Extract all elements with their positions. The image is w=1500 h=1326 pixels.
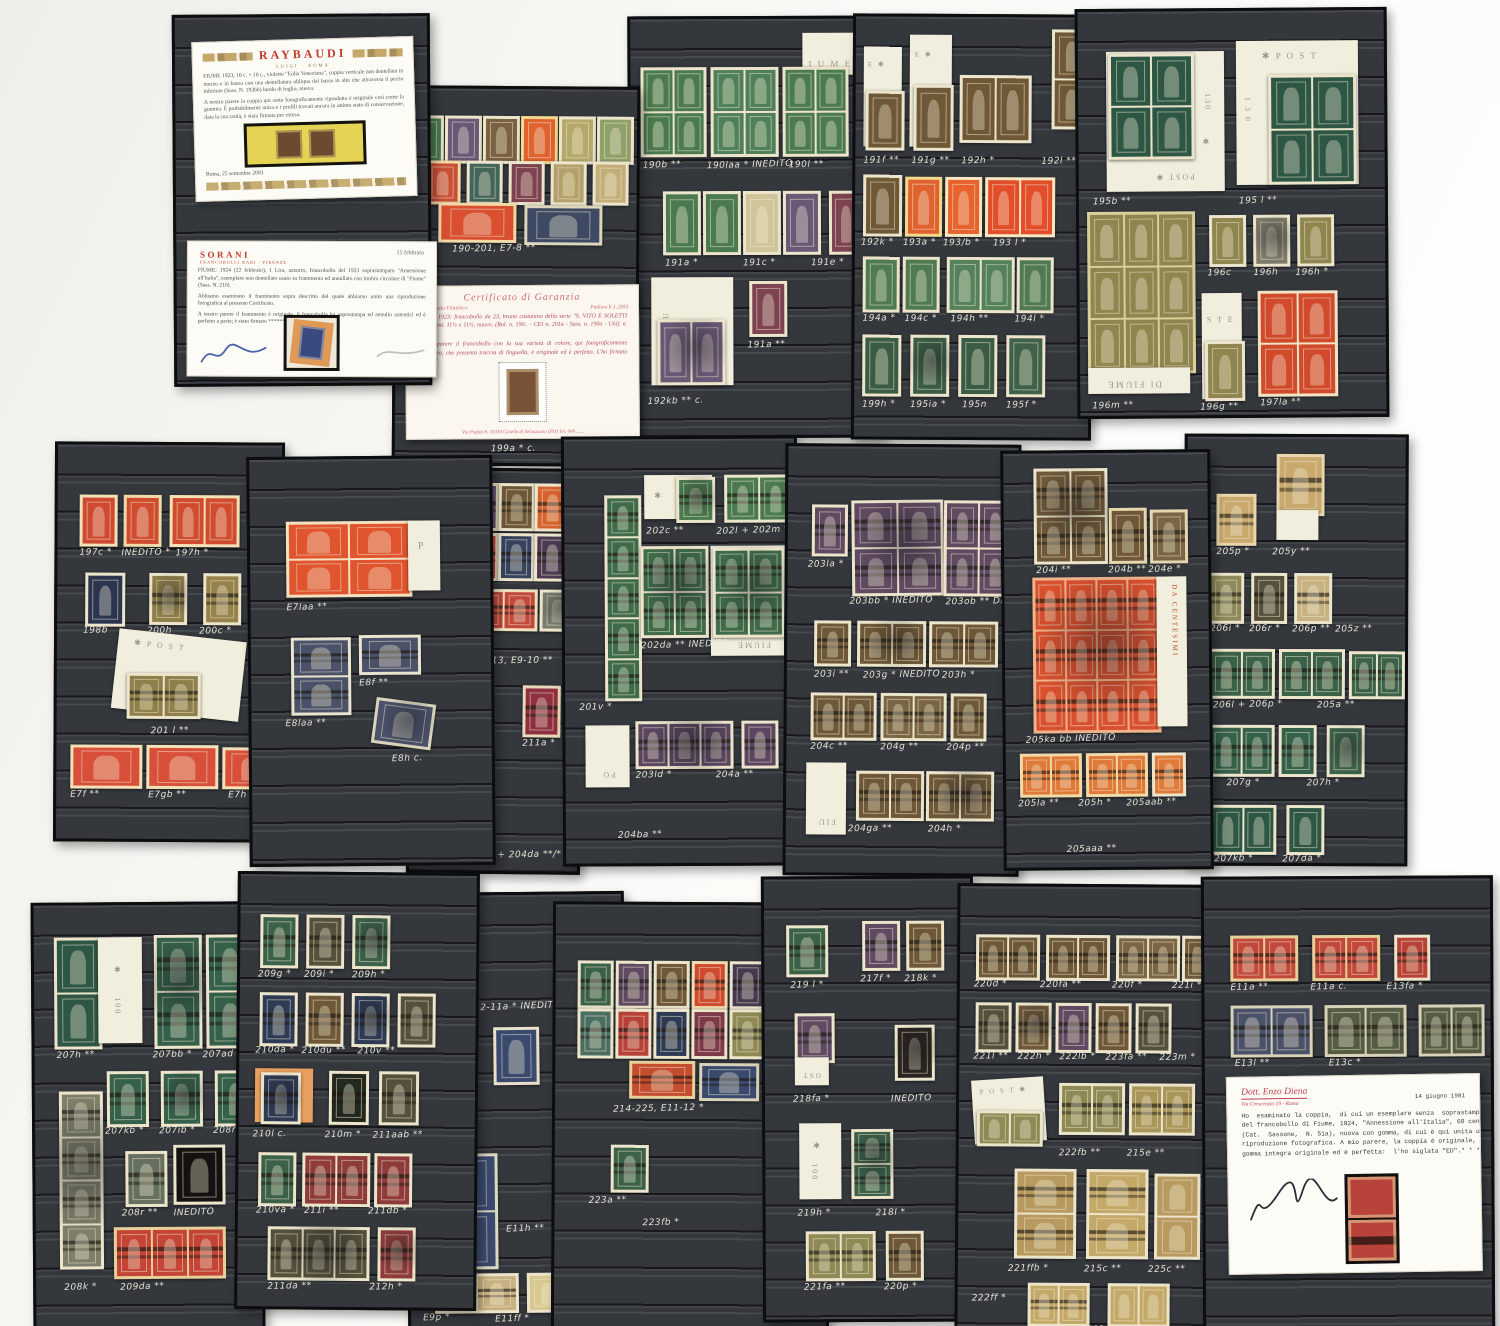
stamp-design [270,1229,301,1277]
stamp [493,1027,540,1085]
stamp-design [866,259,897,309]
stamp-design [929,774,959,818]
stamp-design [1020,260,1051,310]
stamp-design [1219,497,1253,543]
stamp-photo [1344,1173,1399,1264]
stamp-design [607,498,638,537]
stamp-design [1089,1172,1145,1213]
stamp-photo [498,362,546,422]
photographed-stamp [1347,1176,1396,1218]
stamp [149,573,187,625]
stamp-design [164,1074,200,1124]
stamp-design [679,480,712,520]
stamp [1086,1169,1149,1259]
stamp-design [1067,681,1096,730]
stamp-design [1157,1177,1197,1216]
catalog-annotation: 193a * [903,238,936,248]
so-sub: FRANCOBOLLI RARI - FIRENZE [200,260,287,265]
stamp-design [979,937,1007,977]
stamp-design [1271,130,1311,181]
stamp [1312,935,1380,981]
stamp [203,573,241,625]
stamp [1327,725,1365,777]
catalog-annotation: 203g * INEDITO [863,670,941,680]
stamp-design [789,928,825,974]
stamp [640,67,706,157]
stamp [1209,725,1275,777]
stamp [258,1152,296,1206]
stamp [958,335,997,397]
stamp-design [1366,1008,1403,1054]
stamp-design [1313,652,1342,696]
stamp [54,937,103,1049]
catalog-annotation: 221l ** [973,1052,1008,1062]
stamp-design [1112,511,1144,561]
stamp-design [350,524,409,559]
catalog-annotation: 212h * [369,1283,402,1293]
stamp-design [1098,630,1127,679]
stamp [1015,1003,1051,1053]
stamp-design [909,924,941,968]
catalog-annotation: E9p * [423,1313,450,1323]
stamp [438,202,516,243]
catalog-annotation: 191a ** [747,340,785,350]
stamp-design [964,624,995,664]
stamp-design [448,119,479,161]
stamp-design [157,993,199,1046]
stamp-design [657,964,687,1006]
catalog-annotation: 190b ** [643,161,682,171]
stamp [483,116,520,164]
catalog-annotation: 209da ** [120,1282,165,1292]
stamp-design [1159,214,1192,265]
stamp-design [692,322,722,382]
catalog-annotation: 211db * [368,1207,408,1217]
cp: FIUME 1923, 10 c. + 10 c., violetto "Eol… [203,68,404,96]
stamp-design [289,524,348,559]
stamp [862,921,900,971]
stamp-design [913,338,946,394]
stamp [445,116,482,164]
stamp-design [1330,728,1362,774]
margin-inscription: FIU [817,817,836,826]
stamp-design [842,1234,873,1278]
margin-paper: OST [795,1057,829,1085]
catalog-annotation: 223a ** [588,1196,626,1206]
stamp [379,1071,419,1125]
stamp-design [157,938,199,991]
stamp-design [1037,517,1070,561]
stockbook-card: 203la *203bb * INEDITO203ob ** DECAL.203… [782,443,1021,877]
stamp [945,177,982,237]
stamp-design [1149,938,1177,978]
stamp-design [1352,654,1376,696]
catalog-annotation: 194a * [862,314,895,324]
stamp-design [854,1132,890,1163]
stockbook-card: ✱100207h **207bb *207ad **207kb *207ib *… [31,901,266,1326]
catalog-annotation: 196h * [1295,268,1329,278]
catalog-annotation: 211da ** [267,1282,311,1292]
stamp-design [1090,215,1123,266]
stamp-design [786,194,818,252]
stamp [913,85,953,151]
gold-ornament [206,177,406,191]
catalog-annotation: 204c ** [810,742,848,752]
stamp [1027,1283,1089,1326]
stamp-design [1208,344,1242,398]
margin-paper: PO [585,725,629,787]
stamp-design [809,1234,840,1278]
stamp-design [1071,471,1104,515]
stamp [1033,468,1108,565]
stamp-design [206,576,238,622]
stamp [1209,215,1246,267]
stamp-design [785,70,814,111]
stamp-design [596,165,626,203]
stamp-design [854,503,896,547]
photographed-stamp [308,129,335,158]
stamp-design [914,696,943,738]
stamp-design [1129,630,1158,679]
margin-paper: ✱100 [799,1123,841,1199]
stamp [975,1002,1011,1052]
stamp [976,934,1040,980]
stamp [1324,1005,1406,1057]
catalog-annotation: 205z ** [1335,625,1372,635]
stamp-design [892,624,923,664]
stamp-design [1125,267,1158,318]
stamp [1208,573,1244,624]
catalog-annotation: 195f * [1006,401,1037,411]
stamp-design [1098,1006,1128,1050]
margin-inscription: 100 [810,1163,819,1181]
catalog-annotation: 204e * [1148,565,1181,575]
stamp-design [1289,808,1321,852]
photographed-stamp [298,326,325,360]
stamp-design [1313,130,1353,181]
stamp-design [1327,1008,1364,1054]
stamp-design [962,78,994,140]
stamp-design [337,1156,367,1204]
stamp-design [117,1230,151,1276]
catalog-annotation: E13l ** [1235,1059,1270,1069]
stamp [597,117,634,165]
stamp [895,1025,935,1081]
stamp [699,1063,759,1101]
catalog-annotation: INEDITO * [121,548,170,558]
margin-paper: DA CENTESIMI [1156,576,1187,726]
stamp-design [714,113,744,154]
stamp-design [1129,681,1158,730]
stamp-design [1021,180,1052,234]
stamp-design [1018,1006,1048,1050]
catalog-annotation: 204a ** [716,770,754,780]
catalog-annotation: 205a ** [1317,701,1355,711]
stamp-design [817,623,848,663]
stamp [1276,454,1324,516]
catalog-annotation: 203bb * INEDITO [849,596,933,607]
margin-paper: ✱100 [98,937,143,1043]
stamp-design [950,260,980,310]
stamp [653,1009,689,1059]
certificate-raybaudi: RAYBAUDILUIGI · ROMAFIUME 1923, 10 c. + … [191,36,417,202]
stamp-design [1397,938,1427,978]
stamp [371,697,436,750]
stamp [1279,649,1345,699]
catalog-annotation: 194c * [904,314,937,324]
stamp-design [1128,580,1157,629]
stamp [959,75,1031,143]
stamp-design [263,917,295,965]
margin-inscription: P [418,541,426,552]
stamp-design [608,660,639,699]
stamp-design [744,724,775,766]
catalog-annotation: 204ga ** [848,824,892,834]
stamp-design [153,1230,187,1276]
stamp-design [554,164,584,202]
catalog-annotation: 203la * [808,560,844,570]
stamp [1418,1004,1484,1056]
catalog-annotation: E8laa ** [285,719,326,729]
stamp-design [1072,517,1105,561]
stamp [692,961,728,1009]
stamp [1055,1003,1091,1053]
stamp-design [1023,757,1050,795]
stamp-design [1254,576,1284,621]
stamp-design [1091,320,1124,371]
catalog-annotation: E11ff * [495,1314,530,1324]
stamp-design [1211,576,1241,621]
catalog-annotation: 220d * [974,980,1007,990]
stamp-design [860,624,891,664]
margin-inscription: P O S T ✱ [980,1085,1028,1096]
catalog-annotation: 209g * [258,970,291,980]
stamp [374,1153,412,1207]
stamp-design [866,177,899,233]
cp: Abbiamo esaminato il frammento sopra des… [198,293,426,309]
stamp-design [666,194,698,252]
stamp [377,1227,415,1281]
stamp-design [732,1012,762,1056]
stamp-design [527,208,599,243]
stamp [302,1153,370,1208]
stamp-design [1138,1006,1168,1050]
catalog-annotation: 203h * [942,671,975,681]
stamp [676,477,715,523]
stamp-design [165,676,198,716]
stamp [782,67,848,157]
stamp [123,495,161,547]
catalog-annotation: 205ka bb INEDITO [1026,734,1117,746]
stamp [291,637,352,716]
catalog-annotation: 207kb * [105,1127,144,1137]
catalog-annotation: 222ff * [972,1294,1007,1304]
stamp-design [1035,580,1064,629]
stamp-design [1093,1086,1122,1132]
margin-inscription: 100 [113,997,122,1015]
stamp [611,1145,649,1193]
stamp-design [127,498,159,544]
catalog-annotation: 223fa ** [1105,1053,1147,1063]
stamp [1032,577,1161,734]
stamp [1046,935,1110,981]
stamp [806,1231,876,1281]
catalog-annotation: 192k * [861,238,894,248]
stamp-design [1261,345,1297,394]
stamp-design [1212,218,1243,264]
stamp [906,921,944,971]
margin-inscription: PO [601,770,615,779]
fragment [289,319,334,367]
catalog-annotation: 209h * [352,971,385,981]
catalog-annotation: 201 l ** [150,727,189,737]
stamp [1210,805,1276,855]
signature [376,344,426,360]
catalog-annotation: 206l + 206p * [1213,700,1283,711]
stamp [851,1129,893,1199]
stamp-design [656,1012,686,1056]
stamp [1253,215,1290,267]
stamp-design [946,549,977,593]
stamp-design [978,1005,1008,1049]
stamp [259,992,297,1046]
stamp-design [676,593,706,635]
stamp-design [262,995,294,1043]
stamp-design [947,503,978,547]
stamp [1129,1083,1195,1135]
catalog-annotation: E13c * [1329,1059,1362,1069]
stamp [498,483,535,531]
stamp-design [57,940,99,992]
margin-inscription: 1 3 0 [1243,97,1252,123]
stamp-design [619,964,649,1006]
stamp [749,281,787,337]
catalog-annotation: 192h * [961,157,994,167]
stamp-design [644,113,673,154]
stamp [812,504,848,556]
stamp-design [581,963,611,1005]
stamp-design [1139,1286,1166,1324]
stamp-design [607,539,638,578]
catalog-annotation: 220p * [884,1282,918,1292]
catalog-annotation: 207h ** [56,1051,95,1061]
stamp-design [1256,218,1287,264]
stamp-design [62,1094,100,1136]
stamp-design [600,120,631,162]
stockbook-card: POST ✱130✱✱ P O S T1 3 0195b **195 l **D… [1075,7,1390,419]
stamp-design [1119,938,1147,978]
stamp [926,771,994,821]
stockbook-card: E11a **E11a c.E13fa *E13l **E13c *Dott. … [1201,875,1495,1326]
stamp-design [309,918,341,966]
stamp-design [1152,107,1191,156]
catalog-annotation: E12-11a * INEDITI [468,1001,557,1013]
catalog-annotation: 192l ** [1041,157,1076,167]
stamp [1294,573,1332,624]
margin-inscription: POST ✱ [1155,172,1195,181]
stockbook-card: PE7laa **E8f **E8laa **E8h c. [246,455,496,867]
so-name: SORANI [200,250,287,260]
catalog-annotation: 204ba ** [618,831,663,841]
stamp-design [1244,808,1273,852]
stamp-design [63,1225,101,1267]
stamp [359,635,421,676]
stamp-design [982,260,1012,310]
stamp-design [470,164,500,202]
stamp [1152,752,1186,796]
catalog-annotation: 205aab ** [1126,798,1177,809]
catalog-annotation: 211aab ** [373,1131,423,1141]
catalog-annotation: E11a ** [1230,983,1268,993]
stamp-design [1111,57,1150,106]
stamp-design [1049,938,1077,978]
stamp [578,960,614,1008]
stamp [351,993,389,1047]
stamp-design [362,638,418,672]
stamp-design [865,337,898,393]
stamp-design [713,70,743,111]
stamp-design [580,1011,610,1055]
stamp [260,914,298,968]
catalog-annotation: 211a * [522,739,555,749]
stamp-design [478,1276,516,1310]
stamp-design [1157,1218,1197,1257]
stamp-design [898,503,940,547]
stamp-design [1132,1086,1161,1132]
stamp [903,257,940,313]
gold-ornament [203,52,253,61]
stamp [856,771,924,821]
stamp [654,961,690,1009]
stamp-design [1282,728,1314,774]
stockbook-card: 219 l *217f *218k *OST218fa *INEDITO✱100… [761,875,975,1322]
stamp [640,546,708,638]
catalog-annotation: 203ld * [636,771,673,781]
stamp [286,521,413,598]
catalog-annotation: E7gb ** [148,791,186,801]
catalog-annotation: INEDITO [174,1208,215,1218]
catalog-annotation: 196c [1207,269,1231,279]
stamp-design [303,1230,334,1278]
stamp [712,547,784,637]
ga-title: Certificato di Garanzia [406,291,638,304]
catalog-annotation: 202l + 202m ** [716,525,794,536]
catalog-annotation: 191f ** [863,156,899,166]
stamp [616,961,652,1009]
stamp-design [733,964,763,1006]
stamp-design [752,284,784,334]
stamp-design [996,78,1028,140]
stamp-design [501,486,531,528]
stamp [795,1013,835,1063]
stamp [710,67,778,157]
stamp-design [1062,1086,1091,1132]
stockbook-card: ✱202c **202l + 202m **FIUME202da ** INED… [561,435,799,866]
stamp [1006,335,1045,397]
stamp [577,1008,613,1058]
ga-foot: Via Puglia 8, 35030 Caselle di Selvazzan… [407,429,639,436]
stamp-design [354,996,386,1044]
margin-inscription: ✱ [654,491,663,500]
stamp-design [1089,1215,1145,1256]
stamp-design [1030,1286,1057,1324]
catalog-annotation: 218fa * [793,1095,830,1105]
stamp [466,161,502,205]
catalog-annotation: 191a * [665,259,698,269]
stamp [783,191,821,255]
stamp-design [1261,294,1297,343]
di-name: Dott. Enzo Diena [1241,1087,1307,1100]
